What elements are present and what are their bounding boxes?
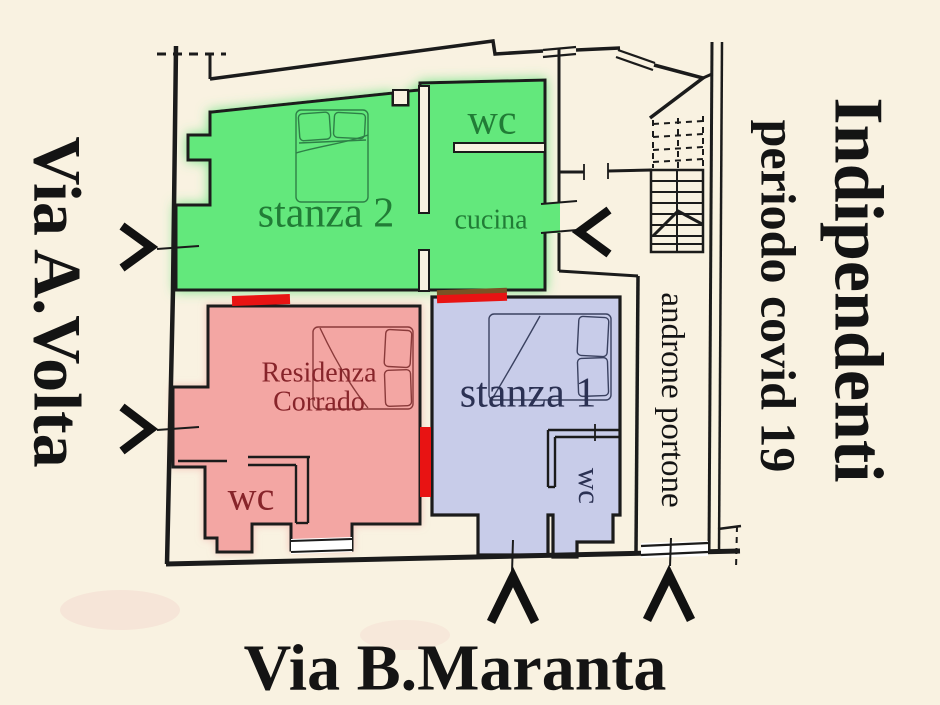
room-label-stanza1: stanza 1	[460, 373, 596, 416]
annotation-subtitle: periodo covid 19	[753, 120, 804, 473]
right-wall-inner	[709, 42, 712, 552]
entrance-arrow-corridor	[579, 210, 609, 254]
top-wall-right	[650, 65, 703, 118]
residenza-line1: Residenza	[261, 359, 376, 388]
top-window-2	[616, 57, 653, 70]
corridor-label-androne-portone: androne portone	[654, 292, 688, 507]
staircase	[651, 116, 703, 252]
divider-wall	[419, 250, 429, 291]
right-wall-outer	[719, 42, 722, 552]
entrance-arrow-bottom-left	[491, 577, 535, 622]
room-label-stanza2: stanza 2	[258, 193, 394, 236]
exterior-dash	[736, 526, 737, 569]
top-wall	[210, 41, 543, 79]
top-window-2	[618, 50, 655, 63]
room-label-residenza-corrado: Residenza Corrado	[261, 359, 376, 416]
annotation-title: Indipendenti	[822, 97, 893, 482]
street-label-via-b-maranta: Via B.Maranta	[244, 634, 667, 701]
room-label-stanza1-wc: wc	[573, 468, 605, 504]
room-stanza1-area	[432, 297, 620, 557]
room-label-cucina: cucina	[454, 207, 527, 236]
wall-notch	[393, 90, 408, 105]
entrance-arrow-left-upper	[122, 226, 151, 268]
street-label-via-a-volta: Via A.Volta	[22, 136, 91, 467]
door-marker-stanza2	[232, 294, 290, 306]
left-wall	[167, 46, 176, 564]
entrance-arrow-left-lower	[122, 407, 151, 451]
floorplan-canvas: Via A.Volta Via B.Maranta Indipendenti p…	[0, 0, 940, 705]
corridor-bottom-wall	[559, 271, 638, 276]
door-tick	[670, 538, 671, 566]
room-label-residenza-wc: wc	[228, 477, 275, 518]
room-label-stanza2-wc: wc	[468, 100, 517, 143]
landing-wall	[608, 170, 652, 171]
staircase-lower-flight	[651, 170, 703, 252]
androne-left-wall	[636, 276, 638, 552]
entrance-arrow-bottom-right	[647, 575, 691, 620]
top-wall	[576, 48, 620, 50]
divider-wall	[454, 143, 545, 152]
cucina-door-opening	[542, 203, 560, 233]
door-marker-stanza1-side	[420, 427, 431, 497]
staircase-upper-flight	[653, 116, 703, 168]
divider-wall	[419, 86, 429, 213]
residenza-line2: Corrado	[261, 388, 376, 417]
